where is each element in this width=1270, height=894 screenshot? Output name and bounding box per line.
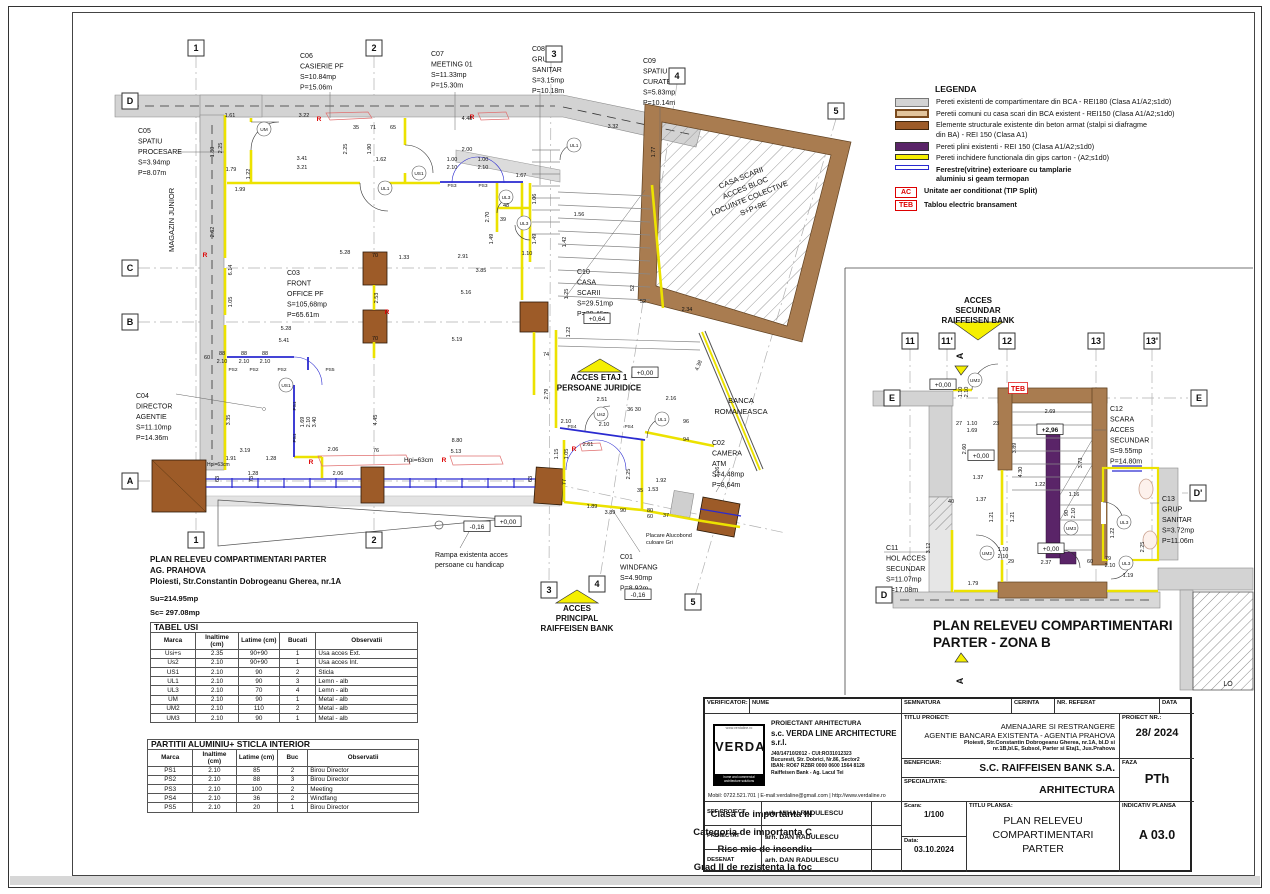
table-cell: 1 [279,714,316,723]
legend-item-text: Pereti plini existenti - REI 150 (Clasa … [936,142,1094,152]
plansa-line: COMPARTIMENTARI [967,828,1119,842]
annotation-rampa: Rampa existenta accespersoane cu handica… [435,552,508,569]
table-cell: 90 [238,714,279,723]
dim-label: 4.45 [373,415,379,426]
table-cell: 2.35 [196,649,239,658]
project-line4: nr.1B,bl.E, Subsol, Parter si Etaj1, Jus… [902,746,1119,752]
dim-label: 2.06 [328,447,339,453]
scara-label: Scara: [902,802,966,810]
dim-label: 1.91 [226,456,237,462]
dim-label: 1.22 [246,169,252,180]
dim-label: 40 [948,499,954,505]
annotation-magazin-junior: MAGAZIN JUNIOR [167,187,176,252]
dim-label: 1.10 [998,547,1009,553]
dim-label: 1.22 [1110,528,1116,539]
table-cell: 2.10 [196,686,239,695]
table-row: US12.10902Sticla [151,668,418,677]
dim-label: 52 [640,299,646,305]
elevation-label: +0,64 [589,316,606,323]
legend: LEGENDA Pereti existenti de compartiment… [895,84,1270,214]
room-label-c07: C07MEETING 01S=11.33mpP=15.30m [431,51,473,90]
table-cell: 2 [277,766,308,775]
table-header: Inaltime (cm) [193,750,236,766]
semnatura-label: SEMNATURA [902,699,1011,707]
dim-label: 1.16 [1069,492,1080,498]
grid-bubble-label: 1 [193,535,198,545]
dim-label: 2.10 [964,387,970,398]
table-row: UL32.10704Lemn - alb [151,686,418,695]
door-tag-ul3: UL3 [502,195,511,201]
titlu-proiect-label: TITLU PROIECT: [902,714,1119,722]
verificator-label: VERIFICATOR: [705,699,749,707]
revision-mark: R [385,309,390,316]
table-cell: 88 [236,775,277,784]
dim-label: 3.41 [297,156,308,162]
table-cell: 2 [277,794,308,803]
designer-company: s.c. VERDA LINE ARCHITECTURE s.r.l. [771,729,899,747]
table-header: Marca [148,750,193,766]
table-cell: 2.10 [196,677,239,686]
table-cell: 4 [279,686,316,695]
elevation-label: +2,96 [1042,427,1059,434]
table-cell: US1 [151,668,196,677]
titlu-plansa-label: TITLU PLANSA: [967,802,1119,810]
table-cell: Usi+s [151,649,196,658]
dim-label: 2.10 [447,165,458,171]
door-tag-ul3: UL3 [1120,520,1129,526]
area-sc: Sc= 297.08mp [150,608,200,617]
grid-bubble-label: 1 [193,43,198,53]
table-row: UM2.10901Metal - alb [151,695,418,704]
table-cell: Metal - alb [316,695,418,704]
table-cell: 2.10 [196,668,239,677]
grid-bubble-label: 4 [674,71,679,81]
staff-role: DESENAT [705,856,761,864]
elevation-label: -0,16 [470,524,485,531]
table-cell: 2 [279,668,316,677]
annotation-alucobond: Placare Alucobondculoare Gri [646,533,692,546]
dim-label: 37 [663,513,669,519]
dim-label: 2.62 [210,227,216,238]
room-label-c12: C12SCARAACCESSECUNDARS=9.55mpP=14.80m [1110,406,1149,466]
dim-label: 1.49 [489,234,495,245]
section-marker-a: A [955,677,965,684]
dim-label: PS5 [325,367,334,373]
table-cell: 36 [236,794,277,803]
table-row: UL12.10903Lemn - alb [151,677,418,686]
dim-label: 4.48 [462,116,473,122]
legend-swatch-ac: AC [895,187,917,198]
legend-item: Pereti existenti de compartimentare din … [895,97,1270,107]
grid-bubble-label: D [127,96,134,106]
table-header: Observatii [316,633,418,649]
data-label: Data: [902,837,966,845]
legend-item: ACUnitate aer conditionat (TIP Split) [895,186,1270,198]
table-cell: PS5 [148,803,193,812]
legend-swatch-brown-solid [895,121,929,130]
designer-contact: Mobil: 0722.521.701 | E-mail:verdaline@g… [708,793,886,799]
dim-label: 76 [373,448,379,454]
room-label-c04: C04DIRECTORAGENTIES=11.10mpP=14.36m [136,393,172,442]
dim-label: 4.30 [1018,467,1024,478]
dim-label: 1.53 [648,487,659,493]
scara-value: 1/100 [902,810,966,819]
table-cell: UM2 [151,704,196,713]
dim-label: PS2 [277,367,286,373]
table-cell: 2.10 [193,794,236,803]
staff-name: arh. DAN RADULESCU [762,826,872,850]
grid-bubble-label: 3 [551,49,556,59]
data-value: 03.10.2024 [902,845,966,854]
dim-label: 39 [500,217,506,223]
table-row: PS22.10883Birou Director [148,775,419,784]
dim-label: 60 [647,514,653,520]
dim-label: 2.70 [485,212,491,223]
dim-label: 2.06 [333,471,344,477]
grid-bubble-label: 2 [371,43,376,53]
dim-label: 35 [637,488,643,494]
elevation-label: +0,00 [973,453,990,460]
dim-label: 1.42 [562,237,568,248]
dim-label: 1.90 [367,144,373,155]
door-tag-ul1: UL1 [658,417,667,423]
project-line1: AMENAJARE SI RESTRANGERE [902,722,1119,731]
table-cell: 1 [279,649,316,658]
annotation-acces-principal: ACCESPRINCIPALRAIFFEISEN BANK [541,604,614,633]
dim-label: 1.22 [1035,482,1046,488]
legend-swatch-purple [895,142,929,151]
table-header: Latime (cm) [236,750,277,766]
grid-bubble-label: 3 [546,585,551,595]
dim-label: 2.61 [583,442,594,448]
door-tag-ul1: UL1 [570,143,579,149]
elevation-label: +0,00 [637,370,654,377]
dim-label: 29 [1008,559,1014,565]
dim-label: 2.34 [682,307,693,313]
dim-label: 5.13 [451,449,462,455]
project-line2: AGENTIE BANCARA EXISTENTA - AGENTIA PRAH… [902,731,1119,740]
dim-label: 1.10 [967,421,978,427]
table-cell: 2.10 [193,766,236,775]
revision-mark: R [203,252,208,259]
table-cell: UM [151,695,196,704]
door-tag-us1: US1 [281,383,291,389]
grid-bubble-label: 13' [1146,336,1158,346]
room-label-c05: C05SPATIUPROCESARES=3.94mpP=8.07m [138,128,182,177]
dim-label: 1.19 [1123,573,1134,579]
plansa-line: PLAN RELEVEU [967,814,1119,828]
table-header: Inaltime (cm) [196,633,239,649]
dim-label: 4.38 [694,360,704,372]
dim-label: 5.16 [461,290,472,296]
dim-label: 5.19 [452,337,463,343]
table-cell: 2.10 [196,658,239,667]
dim-label: 1.92 [656,478,667,484]
table-cell: Lemn - alb [316,686,418,695]
table-cell: 85 [236,766,277,775]
annotation-hpi: Hpi=63cm [404,457,433,464]
table-cell: 90 [238,668,279,677]
dim-label: 88 [241,351,247,357]
dim-label: 2.60 [962,444,968,455]
dim-label: 1.62 [376,157,387,163]
table-cell: Usa acces Ext. [316,649,418,658]
dim-label: 3.35 [226,415,232,426]
designer-role: PROIECTANT ARHITECTURA [771,720,899,727]
table-header: Observatii [308,750,419,766]
dim-label: 1.79 [968,581,979,587]
dim-label: 23 [993,421,999,427]
dim-label: 1.80 [210,147,216,158]
annotation-acces-etaj1: ACCES ETAJ 1PERSOANE JURIDICE [557,373,642,393]
table-row: Us22.1090+901Usa acces Int. [151,658,418,667]
table-title: PARTITII ALUMINIU+ STICLA INTERIOR [148,740,419,750]
dim-label: 2.10 [998,554,1009,560]
dim-label: 65 [390,125,396,131]
faza-value: PTh [1120,771,1194,786]
table-cell: 2 [279,704,316,713]
dim-label: 3.21 [297,165,308,171]
elevation-label: -0,16 [631,592,646,599]
table-cell: 110 [238,704,279,713]
table-row: PS52.10201Birou Director [148,803,419,812]
grid-bubble-label: 11' [941,336,953,346]
dim-label: 1.37 [973,475,984,481]
table-cell: Metal - alb [316,714,418,723]
table-cell: 2.10 [193,785,236,794]
room-label-c01: C01WINDFANGS=4.90mpP=8.92m [620,554,658,593]
table-row: UM22.101102Metal - alb [151,704,418,713]
verda-logo: www.verdaline.ro VERDA home and commerci… [713,724,765,786]
dim-label: 2.25 [218,143,224,154]
dim-label: PS4 [567,424,576,430]
dim-label: 90 [1064,510,1070,516]
door-tag-ul3: UL3 [520,221,529,227]
legend-item-text: Ferestre(vitrine) exterioare cu tamplari… [936,165,1071,184]
dim-label: 2.25 [626,469,632,480]
annotation-lo: LO [1223,681,1233,688]
dim-label: 3.89 [1012,443,1018,454]
room-label-c10: C10CASASCARIIS=29.51mpP=29.46m [577,269,613,318]
table-cell: 90 [238,695,279,704]
room-label-c02: C02CAMERAATMS=4.48mpP=8,64m [712,440,744,489]
dim-label: 70 [372,253,378,259]
table-cell: 90+90 [238,658,279,667]
table-row: PS32.101002Meeting [148,785,419,794]
grid-bubble-label: D' [1194,488,1203,498]
dim-label: 79 [1105,556,1111,562]
grid-bubble-label: C [127,263,134,273]
legend-item: Pereti plini existenti - REI 150 (Clasa … [895,142,1270,152]
door-tag-us2: Us2 [597,412,606,418]
dim-label: PS1 [292,401,298,410]
area-su: Su=214.95mp [150,594,199,603]
dim-label: 1.67 [516,173,527,179]
legend-item-text: Pereti existenti de compartimentare din … [936,97,1171,107]
logo-text: VERDA [715,739,763,754]
table-cell: 2.10 [193,803,236,812]
logo-tagline: home and commercial architecture solutio… [715,774,763,784]
grid-bubble-label: 11 [905,336,915,346]
dim-label: 73 [249,476,255,482]
table-cell: 1 [279,695,316,704]
dim-label: 3.19 [240,448,251,454]
dim-label: 1.33 [399,255,410,261]
grid-bubble-label: B [127,317,134,327]
dim-label: 1.79 [226,167,237,173]
table-cell: Usa acces Int. [316,658,418,667]
staff-signature-cell [872,850,902,872]
nr-referat-label: NR. REFERAT [1055,699,1159,707]
dim-label: 94 [683,437,689,443]
legend-swatch-yellow [895,154,929,160]
table-header: Bucati [279,633,316,649]
dim-label: PS2 [249,367,258,373]
legend-swatch-brown-outline [895,109,929,118]
dim-label: 63 [215,476,221,482]
room-label-c06: C06CASIERIE PFS=10.84mpP=15.06m [300,53,344,92]
dim-label: 3.32 [608,124,619,130]
dim-label: 88 [219,351,225,357]
dim-label: 2.25 [343,144,349,155]
dim-label: 3.89 [605,510,616,516]
beneficiar-label: BENEFICIAR: [902,759,943,767]
dim-label: 48 [503,203,509,209]
plansa-line: PARTER [967,842,1119,856]
door-tag-ul3: UL3 [1122,561,1131,567]
dim-label: 1.69 [300,417,306,428]
data-col-label: DATA [1160,699,1194,707]
dim-label: 2.10 [1071,508,1077,519]
dim-label: 1.05 [564,449,570,460]
main-plan-title: PLAN RELEVEU COMPARTIMENTARI PARTERAG. P… [150,555,341,586]
legend-title: LEGENDA [935,84,1270,94]
table-cell: Windfang [308,794,419,803]
grid-bubble-label: 12 [1002,336,1012,346]
legend-swatch-teb: TEB [895,200,917,211]
door-tag-um: UM [260,127,267,133]
dim-label: 2.10 [260,359,271,365]
handicap-ramp [218,500,505,548]
teb-label: TEB [1011,386,1025,393]
dim-label: 60 [204,355,210,361]
table-cell: UM3 [151,714,196,723]
dim-label: 1.37 [976,497,987,503]
staff-name: arh. MIHAI RADULESCU [762,802,872,826]
dim-label: 2.10 [306,417,312,428]
door-tag-um2: UM2 [982,551,992,557]
legend-items: Pereti existenti de compartimentare din … [895,97,1270,211]
table-row: PS42.10362Windfang [148,794,419,803]
room-label-c03: C03FRONTOFFICE PFS=105,68mpP=65.61m [287,270,327,319]
dim-label: 5.28 [340,250,351,256]
legend-item: Peretii comuni cu casa scari din BCA exi… [895,109,1270,119]
legend-item-text: Tablou electric bransament [924,200,1017,210]
dim-label: 1.61 [225,113,236,119]
staff-role: PROIECTAT [705,832,761,840]
dim-label: 1.22 [566,327,572,338]
table-cell: 70 [238,686,279,695]
dim-label: 2.10 [599,422,610,428]
dim-label: 2.51 [597,397,608,403]
dim-label: 90 [620,508,626,514]
dim-label: 2.16 [666,396,677,402]
annotation-acces-secundar: ACCESSECUNDARRAIFFEISEN BANK [942,296,1015,325]
dim-label: 1.69 [967,428,978,434]
dim-label: 2.53 [374,293,380,304]
dim-label: 1.28 [266,456,277,462]
table-partitii: PARTITII ALUMINIU+ STICLA INTERIORMarcaI… [147,739,419,813]
dim-label: 27 [956,421,962,427]
table-row: UM32.10901Metal - alb [151,714,418,723]
dim-label: 1.00 [447,157,458,163]
dim-label: 1.05 [228,297,234,308]
dim-label: 1.77 [651,147,657,158]
dim-label: 1.06 [532,194,538,205]
table-title: TABEL USI [151,623,418,633]
table-cell: 2.10 [196,695,239,704]
table-row: PS12.10852Birou Director [148,766,419,775]
logo-url: www.verdaline.ro [715,726,763,730]
dim-label: 1.21 [1010,512,1016,523]
table-cell: 3 [279,677,316,686]
dim-label: 1.99 [235,187,246,193]
table-header: Marca [151,633,196,649]
dim-label: 36 30 [627,407,641,413]
dim-label: 2.26 [715,467,721,478]
banca-boundary-wall [699,331,1128,562]
revision-mark: R [442,457,447,464]
dim-label: 2.91 [458,254,469,260]
table-cell: PS3 [148,785,193,794]
faza-label: FAZA [1120,759,1194,767]
dim-label: PS3 [447,183,456,189]
table-cell: 2.10 [196,714,239,723]
legend-item-text: Pereti inchidere functionala din gips ca… [936,153,1109,163]
drawing-sheet: C05SPATIUPROCESARES=3.94mpP=8.07mC06CASI… [0,0,1270,894]
table-cell: Sticla [316,668,418,677]
legend-swatch-gray [895,98,929,107]
dim-label: 96 [683,419,689,425]
dim-label: 2.00 [462,147,473,153]
table-cell: Birou Director [308,766,419,775]
grid-bubble-label: D [881,590,888,600]
table-cell: 20 [236,803,277,812]
table-row: Usi+s2.3590+901Usa acces Ext. [151,649,418,658]
dim-label: 70 [372,336,378,342]
title-block: VERIFICATOR: NUME SEMNATURA CERINTA NR. … [703,697,1192,872]
dim-label: 1.49 [532,234,538,245]
dim-label: 2.10 [478,165,489,171]
dim-label: 1.10 [522,251,533,257]
table-cell: Lemn - alb [316,677,418,686]
dim-label: 1.56 [574,212,585,218]
elevation-label: +0,00 [935,382,952,389]
dim-label: 2.69 [1045,409,1056,415]
door-tag-us1: US1 [414,171,424,177]
table-cell: 2 [277,785,308,794]
dim-label: 1.00 [478,157,489,163]
staff-name: arh. DAN RADULESCU [762,850,872,872]
proiect-nr-value: 28/ 2024 [1120,727,1194,739]
dim-label: 2.10 [239,359,250,365]
zone-b-title: PLAN RELEVEU COMPARTIMENTARIPARTER - ZON… [933,618,1173,650]
legend-item: Elemente structurale existente din beton… [895,120,1270,139]
dim-label: 5.41 [279,338,290,344]
table-cell: 1 [277,803,308,812]
staff-signature-cell [872,826,902,850]
revision-mark: R [572,446,577,453]
